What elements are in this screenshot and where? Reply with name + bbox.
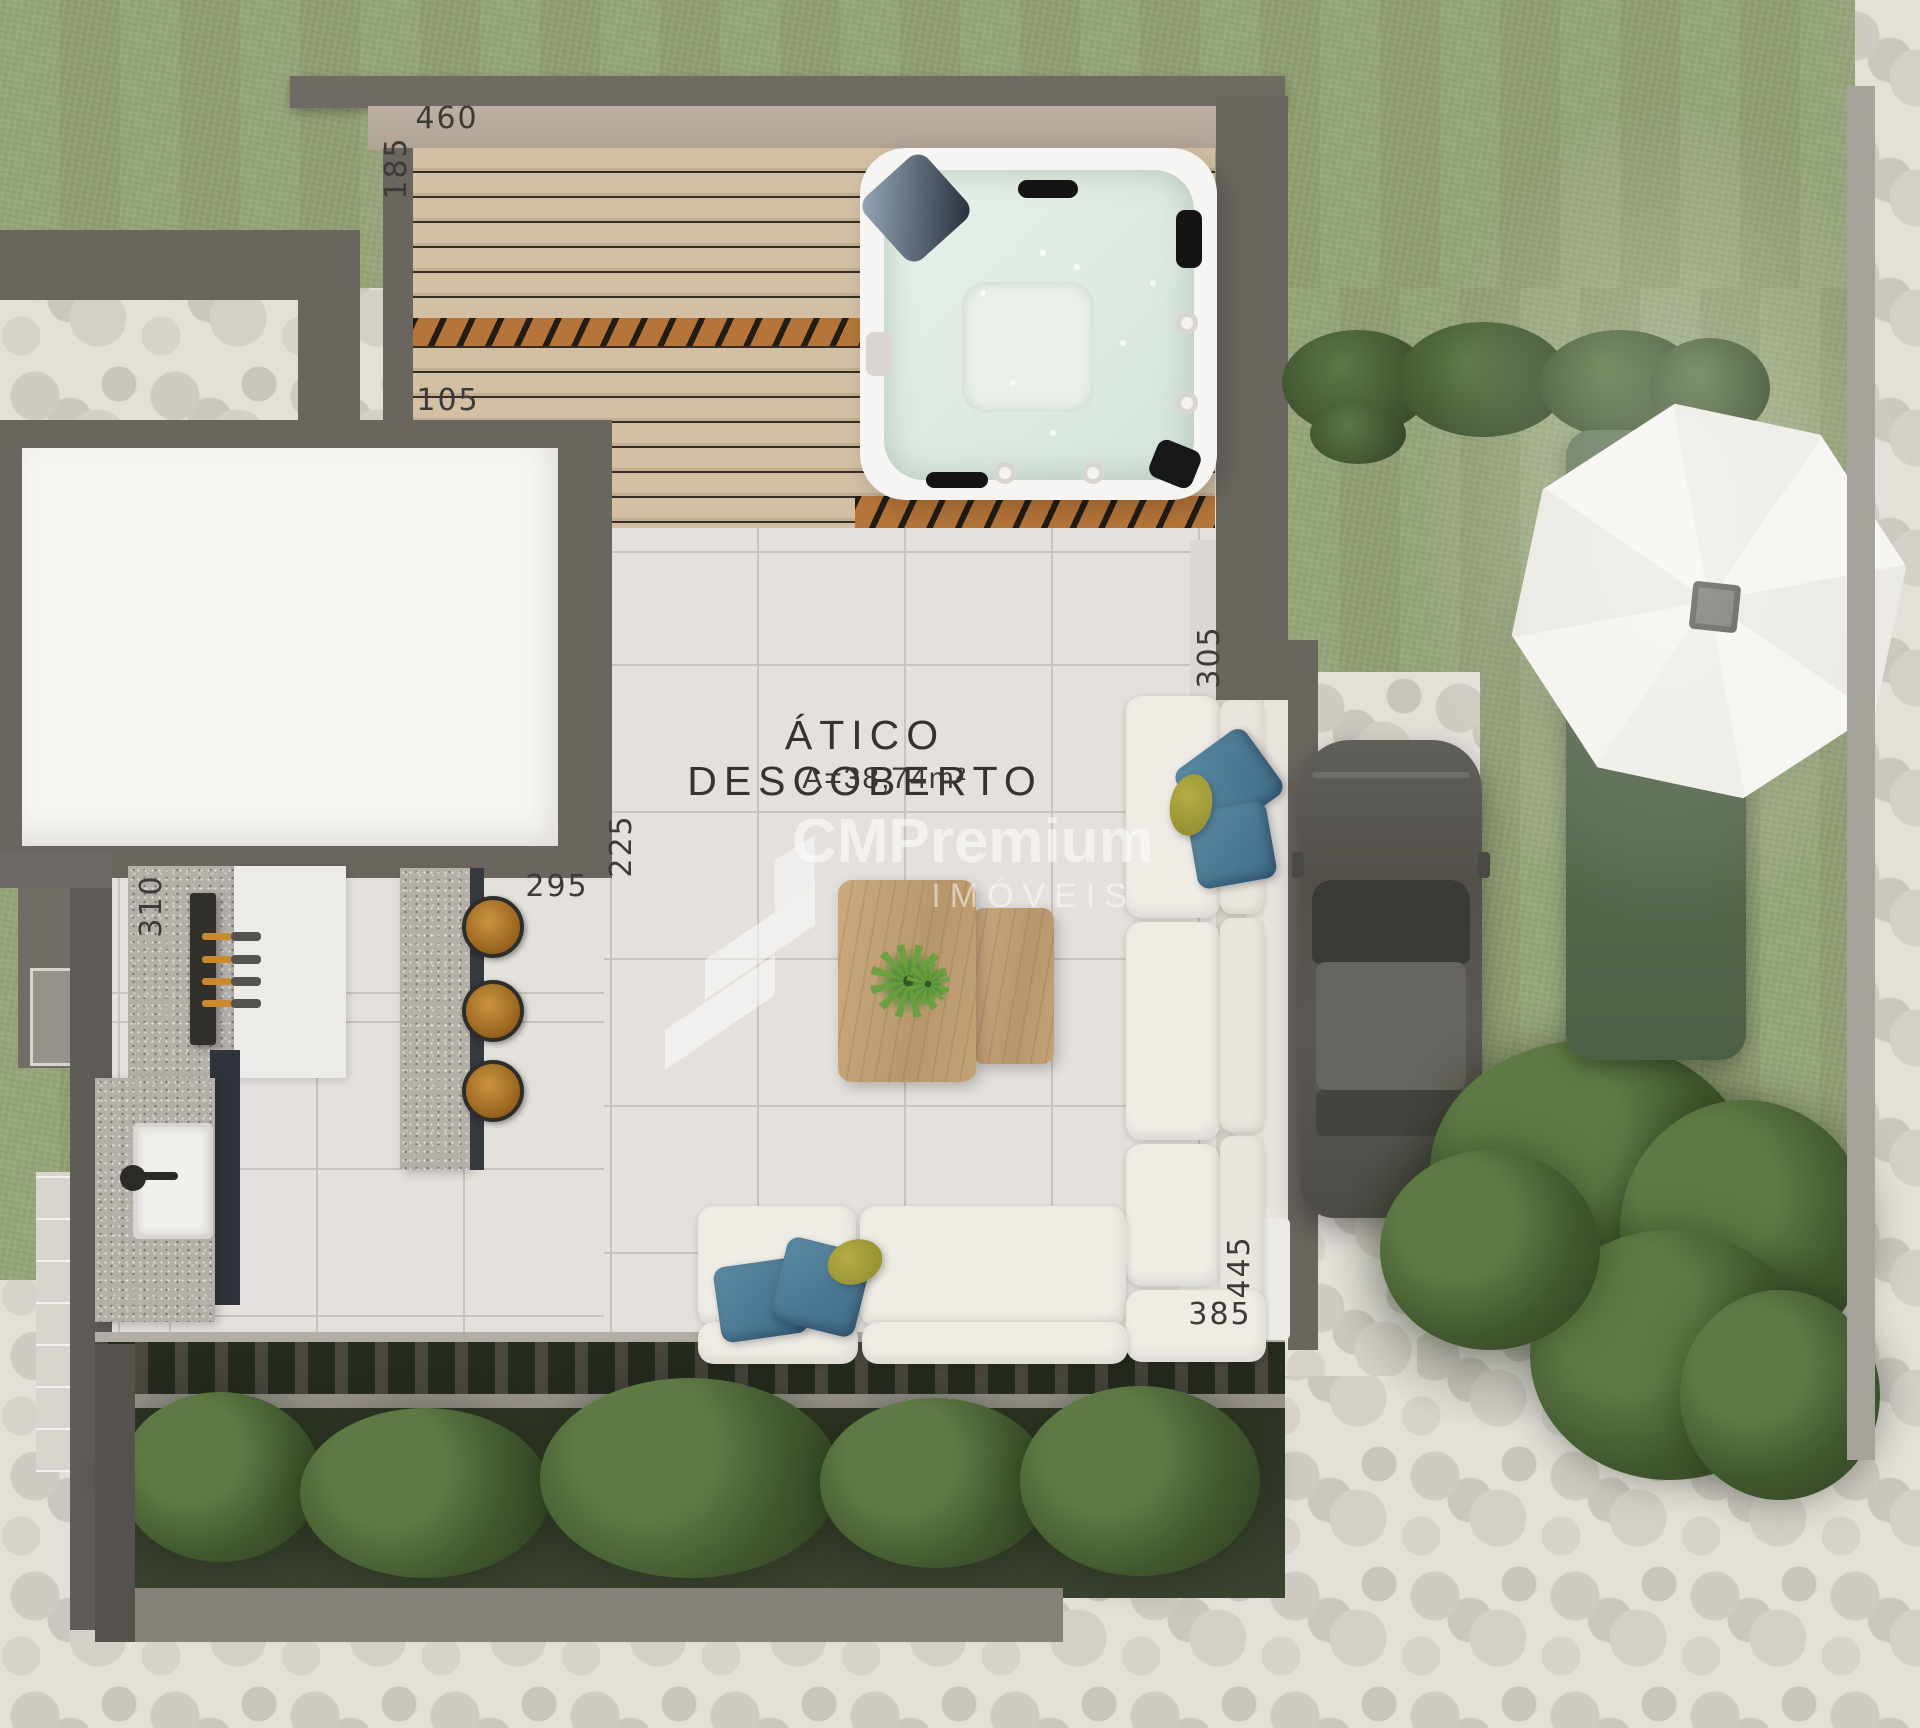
- bar-stool: [462, 896, 524, 958]
- watermark-subtitle: IMÓVEIS: [900, 876, 1136, 916]
- skewer-handle-icon: [202, 956, 232, 963]
- skewer-rod-icon: [231, 955, 261, 964]
- wall-bottom-left: [95, 1344, 135, 1642]
- skewer-handle-icon: [202, 933, 232, 940]
- hot-tub-headrest: [926, 472, 988, 488]
- sofa-seat-cushion: [1126, 1144, 1220, 1286]
- hot-tub-jet-icon: [1176, 312, 1198, 334]
- dimension-label-310: 310: [137, 866, 167, 946]
- tree-canopy: [1380, 1150, 1600, 1350]
- floor-plan-render: ÁTICO DESCOBERTO A=38,74m² CMPremium IMÓ…: [0, 0, 1920, 1728]
- hot-tub-seat: [962, 282, 1094, 412]
- dimension-label-225: 225: [607, 806, 637, 886]
- skewer-rod-icon: [231, 977, 261, 986]
- skewer-handle-icon: [202, 1000, 232, 1007]
- car-mirror-icon: [1292, 852, 1304, 878]
- bar-stool: [462, 1060, 524, 1122]
- dimension-label-295: 295: [517, 872, 597, 902]
- hot-tub-bubbles: [1040, 250, 1046, 256]
- hot-tub-jet-icon: [1176, 392, 1198, 414]
- worktop-white: [234, 866, 346, 1078]
- skewer-rod-icon: [231, 932, 261, 941]
- wall-right-upper: [1216, 96, 1288, 700]
- deck-step-edge-upper: [412, 318, 870, 346]
- skewer-rod-icon: [231, 999, 261, 1008]
- dimension-label-185: 185: [382, 128, 412, 208]
- watermark-brand: CMPremium: [792, 806, 1212, 878]
- room-area-label: A=38,74m²: [660, 762, 1110, 796]
- wall-right-boundary: [1847, 86, 1875, 1460]
- potted-plant-icon: [906, 962, 950, 1006]
- hot-tub-jet-icon: [1082, 462, 1104, 484]
- hedge-shrub: [1310, 404, 1406, 464]
- faucet-arm-icon: [138, 1172, 178, 1180]
- sofa-seat-cushion: [862, 1322, 1128, 1364]
- hot-tub-control-panel: [866, 332, 892, 376]
- tree-canopy: [300, 1408, 550, 1578]
- wall-top-left-vertical: [298, 230, 360, 424]
- coffee-table-extension: [972, 908, 1054, 1064]
- wall-stub-left: [0, 852, 112, 888]
- bar-stool: [462, 980, 524, 1042]
- dimension-label-460: 460: [407, 104, 487, 134]
- deck-step-edge-lower: [855, 496, 1215, 528]
- dimension-label-385: 385: [1180, 1300, 1260, 1330]
- hot-tub-headrest: [1018, 180, 1078, 198]
- hot-tub-jet-icon: [994, 462, 1016, 484]
- skewer-handle-icon: [202, 978, 232, 985]
- roof-slab-edge: [368, 106, 1285, 150]
- barbecue-grill: [190, 893, 216, 1045]
- building-roof-panel: [22, 448, 558, 846]
- bar-island-counter: [400, 868, 470, 1170]
- tree-canopy: [1020, 1386, 1260, 1576]
- tree-canopy: [120, 1392, 320, 1562]
- dimension-label-105: 105: [408, 386, 488, 416]
- stone-path-left: [36, 1172, 72, 1472]
- sofa-back-cushion: [860, 1206, 1126, 1326]
- sunlight-wash: [1420, 100, 1920, 940]
- sofa-seat-cushion: [1126, 922, 1220, 1140]
- tree-canopy: [540, 1378, 840, 1578]
- wall-bottom: [95, 1588, 1063, 1642]
- sofa-back-cushion: [1220, 918, 1264, 1132]
- car-roof: [1316, 962, 1466, 1090]
- hot-tub-headrest: [1176, 210, 1202, 268]
- dimension-label-305: 305: [1195, 617, 1225, 697]
- tree-canopy: [820, 1398, 1050, 1568]
- dimension-label-445: 445: [1225, 1227, 1255, 1307]
